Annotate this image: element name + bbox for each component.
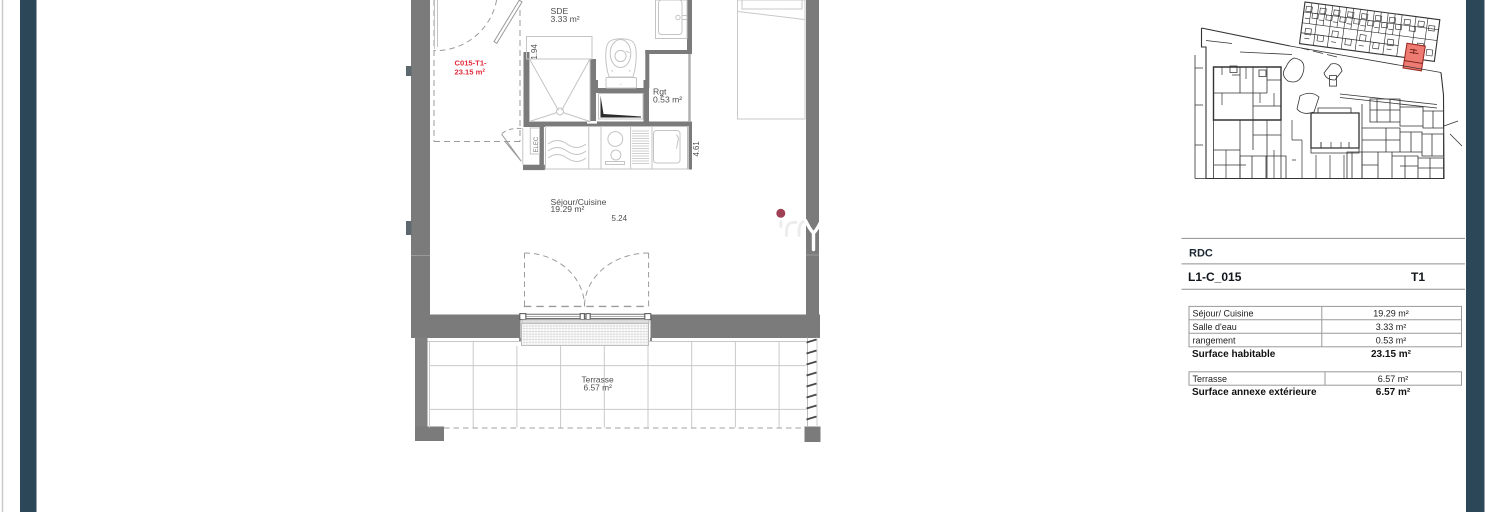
- svg-text:1.94: 1.94: [530, 44, 539, 60]
- svg-text:Surface annexe extérieure: Surface annexe extérieure: [1192, 387, 1317, 398]
- svg-text:4.61: 4.61: [692, 141, 701, 156]
- svg-text:C015-T1-: C015-T1-: [455, 59, 488, 68]
- svg-text:Salle d'eau: Salle d'eau: [1193, 322, 1237, 332]
- svg-text:RDC: RDC: [1189, 248, 1213, 260]
- svg-text:0.53 m²: 0.53 m²: [653, 95, 682, 105]
- svg-text:Séjour/ Cuisine: Séjour/ Cuisine: [1193, 308, 1254, 318]
- svg-text:Terrasse: Terrasse: [1193, 374, 1228, 384]
- svg-text:23.15 m²: 23.15 m²: [1371, 349, 1412, 360]
- svg-text:19.29 m²: 19.29 m²: [1373, 308, 1409, 318]
- svg-text:6.57 m²: 6.57 m²: [1376, 387, 1411, 398]
- svg-text:5.24: 5.24: [612, 214, 628, 223]
- svg-text:6.57 m²: 6.57 m²: [584, 383, 613, 393]
- svg-text:19.29 m²: 19.29 m²: [551, 204, 585, 214]
- svg-text:3.33 m²: 3.33 m²: [1376, 322, 1407, 332]
- svg-text:3.33 m²: 3.33 m²: [551, 14, 580, 24]
- svg-text:L1-C_015: L1-C_015: [1188, 270, 1242, 284]
- svg-text:rangement: rangement: [1193, 335, 1237, 345]
- svg-text:T1: T1: [1411, 270, 1425, 284]
- svg-text:0.53 m²: 0.53 m²: [1376, 335, 1407, 345]
- svg-text:6.57 m²: 6.57 m²: [1378, 374, 1409, 384]
- svg-text:Surface habitable: Surface habitable: [1192, 349, 1276, 360]
- svg-text:23.15 m²: 23.15 m²: [455, 68, 486, 77]
- svg-text:ELEC: ELEC: [534, 136, 540, 152]
